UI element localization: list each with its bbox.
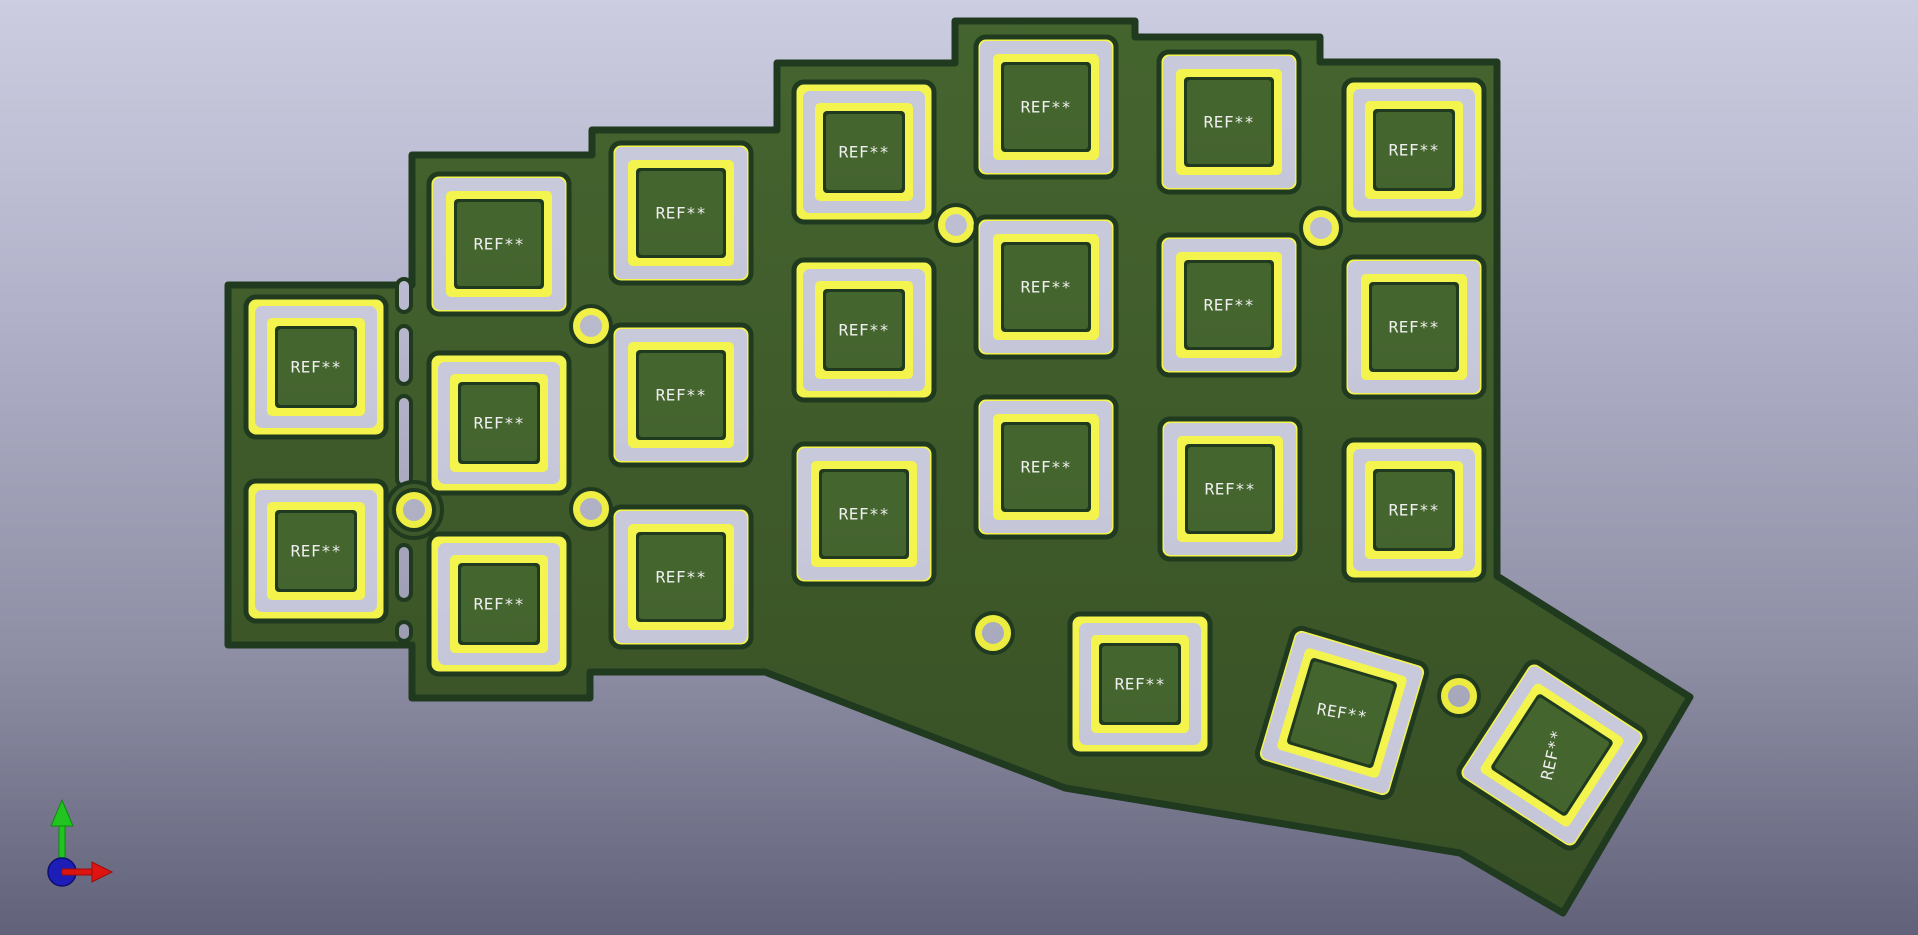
key-footprint: REF** bbox=[976, 397, 1116, 537]
ref-label: REF** bbox=[656, 568, 707, 587]
pcb-3d-viewport[interactable]: REF**REF**REF**REF**REF**REF**REF**REF**… bbox=[0, 0, 1918, 935]
hole-bore bbox=[1310, 217, 1332, 239]
key-footprint: REF** bbox=[794, 260, 934, 400]
ref-label: REF** bbox=[1204, 113, 1255, 132]
ref-label: REF** bbox=[1021, 458, 1072, 477]
ref-label: REF** bbox=[291, 358, 342, 377]
ref-label: REF** bbox=[1389, 318, 1440, 337]
key-footprint: REF** bbox=[794, 82, 934, 222]
key-footprint: REF** bbox=[1344, 80, 1484, 220]
key-footprint: REF** bbox=[1070, 614, 1210, 754]
ref-label: REF** bbox=[1204, 296, 1255, 315]
key-footprint: REF** bbox=[246, 481, 386, 621]
ref-label: REF** bbox=[1205, 480, 1256, 499]
key-footprint: REF** bbox=[1159, 52, 1299, 192]
hole-bore bbox=[982, 622, 1004, 644]
ref-label: REF** bbox=[839, 143, 890, 162]
mounting-hole bbox=[1301, 208, 1341, 248]
mounting-hole bbox=[1439, 676, 1479, 716]
hole-bore bbox=[1448, 685, 1470, 707]
mounting-hole bbox=[936, 205, 976, 245]
key-footprint: REF** bbox=[976, 217, 1116, 357]
key-footprint: REF** bbox=[1160, 419, 1300, 559]
key-footprint: REF** bbox=[611, 143, 751, 283]
ref-label: REF** bbox=[474, 595, 525, 614]
axis-x-shaft bbox=[62, 869, 96, 875]
ref-label: REF** bbox=[656, 204, 707, 223]
panel-slot bbox=[397, 326, 411, 384]
mounting-hole bbox=[571, 306, 611, 346]
ref-label: REF** bbox=[1021, 278, 1072, 297]
ref-label: REF** bbox=[1115, 675, 1166, 694]
ref-label: REF** bbox=[839, 505, 890, 524]
hole-bore bbox=[580, 315, 602, 337]
panel-slot bbox=[397, 545, 411, 600]
mounting-hole bbox=[571, 489, 611, 529]
ref-label: REF** bbox=[474, 235, 525, 254]
hole-bore bbox=[945, 214, 967, 236]
ref-label: REF** bbox=[474, 414, 525, 433]
hole-bore bbox=[580, 498, 602, 520]
ref-label: REF** bbox=[1389, 501, 1440, 520]
ref-label: REF** bbox=[291, 542, 342, 561]
key-footprint: REF** bbox=[794, 444, 934, 584]
key-footprint: REF** bbox=[1344, 440, 1484, 580]
key-footprint: REF** bbox=[429, 353, 569, 493]
panel-slot bbox=[397, 622, 411, 641]
key-footprint: REF** bbox=[429, 174, 569, 314]
hole-bore bbox=[403, 499, 425, 521]
pcb-3d-render: REF**REF**REF**REF**REF**REF**REF**REF**… bbox=[0, 0, 1918, 935]
key-footprint: REF** bbox=[429, 534, 569, 674]
axis-orientation-gizmo bbox=[48, 800, 112, 886]
mounting-hole bbox=[973, 613, 1013, 653]
axis-x-head bbox=[92, 862, 112, 882]
key-footprint: REF** bbox=[1159, 235, 1299, 375]
key-footprint: REF** bbox=[611, 325, 751, 465]
axis-y-head bbox=[51, 800, 73, 826]
panel-slot bbox=[397, 279, 411, 312]
key-footprint: REF** bbox=[611, 507, 751, 647]
ref-label: REF** bbox=[656, 386, 707, 405]
key-footprint: REF** bbox=[1344, 257, 1484, 397]
key-footprint: REF** bbox=[246, 297, 386, 437]
ref-label: REF** bbox=[1021, 98, 1072, 117]
ref-label: REF** bbox=[839, 321, 890, 340]
ref-label: REF** bbox=[1389, 141, 1440, 160]
panel-slot bbox=[397, 396, 411, 486]
key-footprint: REF** bbox=[976, 37, 1116, 177]
